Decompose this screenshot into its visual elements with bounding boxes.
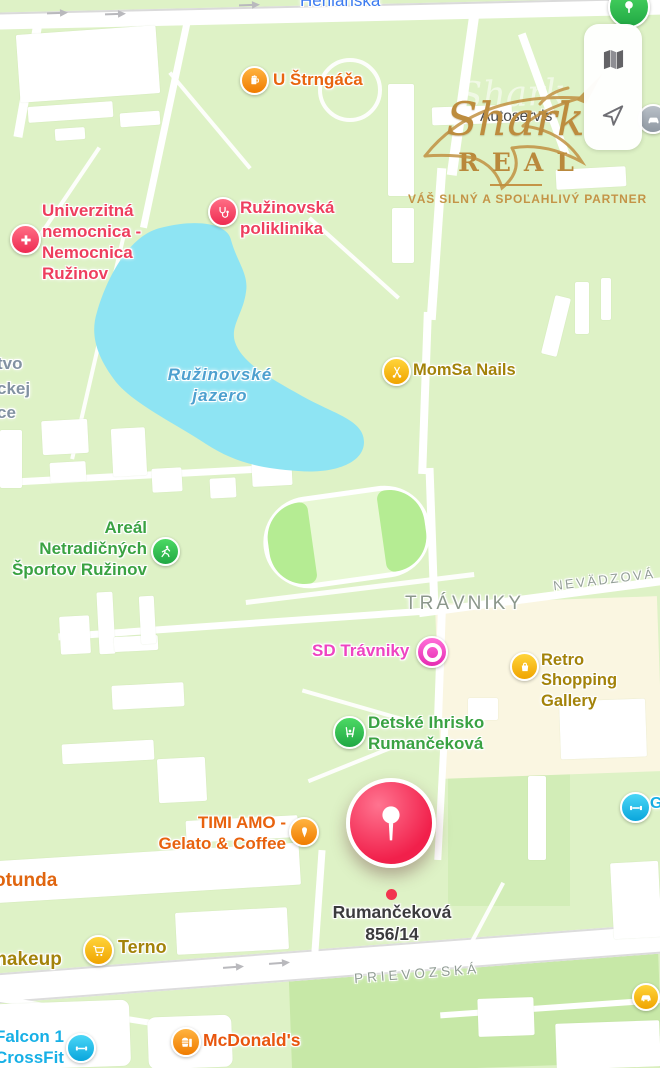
poi-label-terno[interactable]: Terno	[118, 936, 167, 958]
watermark-ghost-text: Shark	[457, 72, 567, 117]
building	[610, 861, 660, 939]
stadium-end	[263, 501, 318, 588]
poi-label-makeup[interactable]: makeup	[0, 948, 62, 972]
poi-label-u-strngaca[interactable]: U Štrngáča	[273, 69, 363, 90]
watermark-divider	[490, 184, 542, 186]
location-arrow-icon	[600, 102, 626, 128]
stadium-track	[257, 480, 436, 594]
building	[55, 127, 86, 141]
building	[157, 757, 207, 803]
building	[0, 430, 22, 488]
building	[392, 208, 414, 263]
building	[575, 282, 589, 334]
shopping-cart-icon[interactable]	[83, 935, 114, 966]
pin-location-dot	[386, 889, 397, 900]
building	[120, 111, 161, 128]
poi-label-momsa-nails[interactable]: MomSa Nails	[413, 360, 516, 380]
shopping-bag-icon[interactable]	[510, 652, 539, 681]
locate-me-button[interactable]	[591, 93, 635, 137]
road-arrow	[222, 961, 249, 973]
fast-food-icon[interactable]	[171, 1027, 201, 1057]
building	[528, 776, 546, 860]
building	[555, 1020, 660, 1068]
building	[477, 997, 534, 1037]
building	[28, 101, 114, 123]
road-segment	[418, 312, 432, 474]
building	[541, 295, 571, 357]
building	[59, 615, 91, 655]
pin-glyph-icon	[369, 801, 413, 845]
ring-glyph	[423, 643, 442, 662]
dropped-pin[interactable]	[346, 778, 436, 868]
road-arrow	[46, 8, 72, 19]
road-arrow	[238, 0, 264, 10]
poi-label-timi-amo[interactable]: TIMI AMO - Gelato & Coffee	[128, 812, 286, 854]
building	[175, 907, 289, 955]
building	[62, 740, 155, 765]
map-controls-panel	[584, 24, 642, 150]
selected-address-label[interactable]: Rumančeková 856/14	[292, 902, 492, 945]
playground-swing-icon[interactable]	[333, 716, 366, 749]
poi-label-falcon-crossfit[interactable]: Falcon 1 CrossFit	[0, 1026, 64, 1068]
ring-icon[interactable]	[416, 636, 448, 668]
street-label-herlianska[interactable]: Herlianska	[300, 0, 380, 11]
building	[111, 682, 184, 710]
ice-cream-icon[interactable]	[289, 817, 319, 847]
medical-cross-icon[interactable]	[10, 224, 41, 255]
poi-label-areal-sportov[interactable]: Areál Netradičných Športov Ružinov	[0, 517, 147, 580]
poi-label-retro-gallery[interactable]: Retro Shopping Gallery	[541, 650, 660, 711]
building	[601, 278, 611, 320]
building	[388, 84, 414, 196]
runner-icon[interactable]	[151, 537, 180, 566]
lake-label: Ružinovské jazero	[150, 364, 290, 406]
district-label-travniky: TRÁVNIKY	[405, 592, 524, 616]
road-arrow	[104, 9, 130, 20]
stadium-end	[376, 485, 431, 572]
scissors-icon[interactable]	[382, 357, 411, 386]
building	[556, 166, 627, 190]
building	[96, 592, 115, 655]
building	[139, 596, 156, 645]
poi-label-rotunda[interactable]: otunda	[0, 869, 57, 893]
poi-label-mcdonalds[interactable]: McDonald's	[203, 1030, 301, 1052]
poi-label-detske-ihrisko[interactable]: Detské Ihrisko Rumančeková	[368, 712, 484, 754]
map-canvas[interactable]: Ružinovské jazero Herlianska NEVÄDZOVÁ T…	[0, 0, 660, 1068]
beer-mug-icon[interactable]	[240, 66, 269, 95]
road-segment	[58, 607, 440, 641]
poi-label-poliklinika[interactable]: Ružinovská poliklinika	[240, 197, 334, 239]
stethoscope-icon[interactable]	[208, 197, 238, 227]
poi-label-hospital[interactable]: Univerzitná nemocnica - Nemocnica Ružino…	[42, 200, 192, 284]
poi-label-sd-travniky[interactable]: SD Trávniky	[312, 640, 409, 661]
car-icon[interactable]	[632, 983, 660, 1011]
footpath	[168, 71, 251, 169]
dumbbell-icon[interactable]	[620, 792, 651, 823]
poi-label-gym-right-cropped[interactable]: G	[650, 794, 660, 814]
building	[50, 461, 87, 483]
road-arrow	[268, 957, 295, 969]
street-label-cropped-left: tvo ckej ce	[0, 352, 30, 426]
building	[41, 419, 89, 455]
road-segment	[427, 168, 447, 320]
folded-map-icon	[600, 46, 627, 73]
map-mode-button[interactable]	[591, 38, 635, 82]
building	[16, 25, 160, 103]
dumbbell-icon[interactable]	[66, 1033, 96, 1063]
